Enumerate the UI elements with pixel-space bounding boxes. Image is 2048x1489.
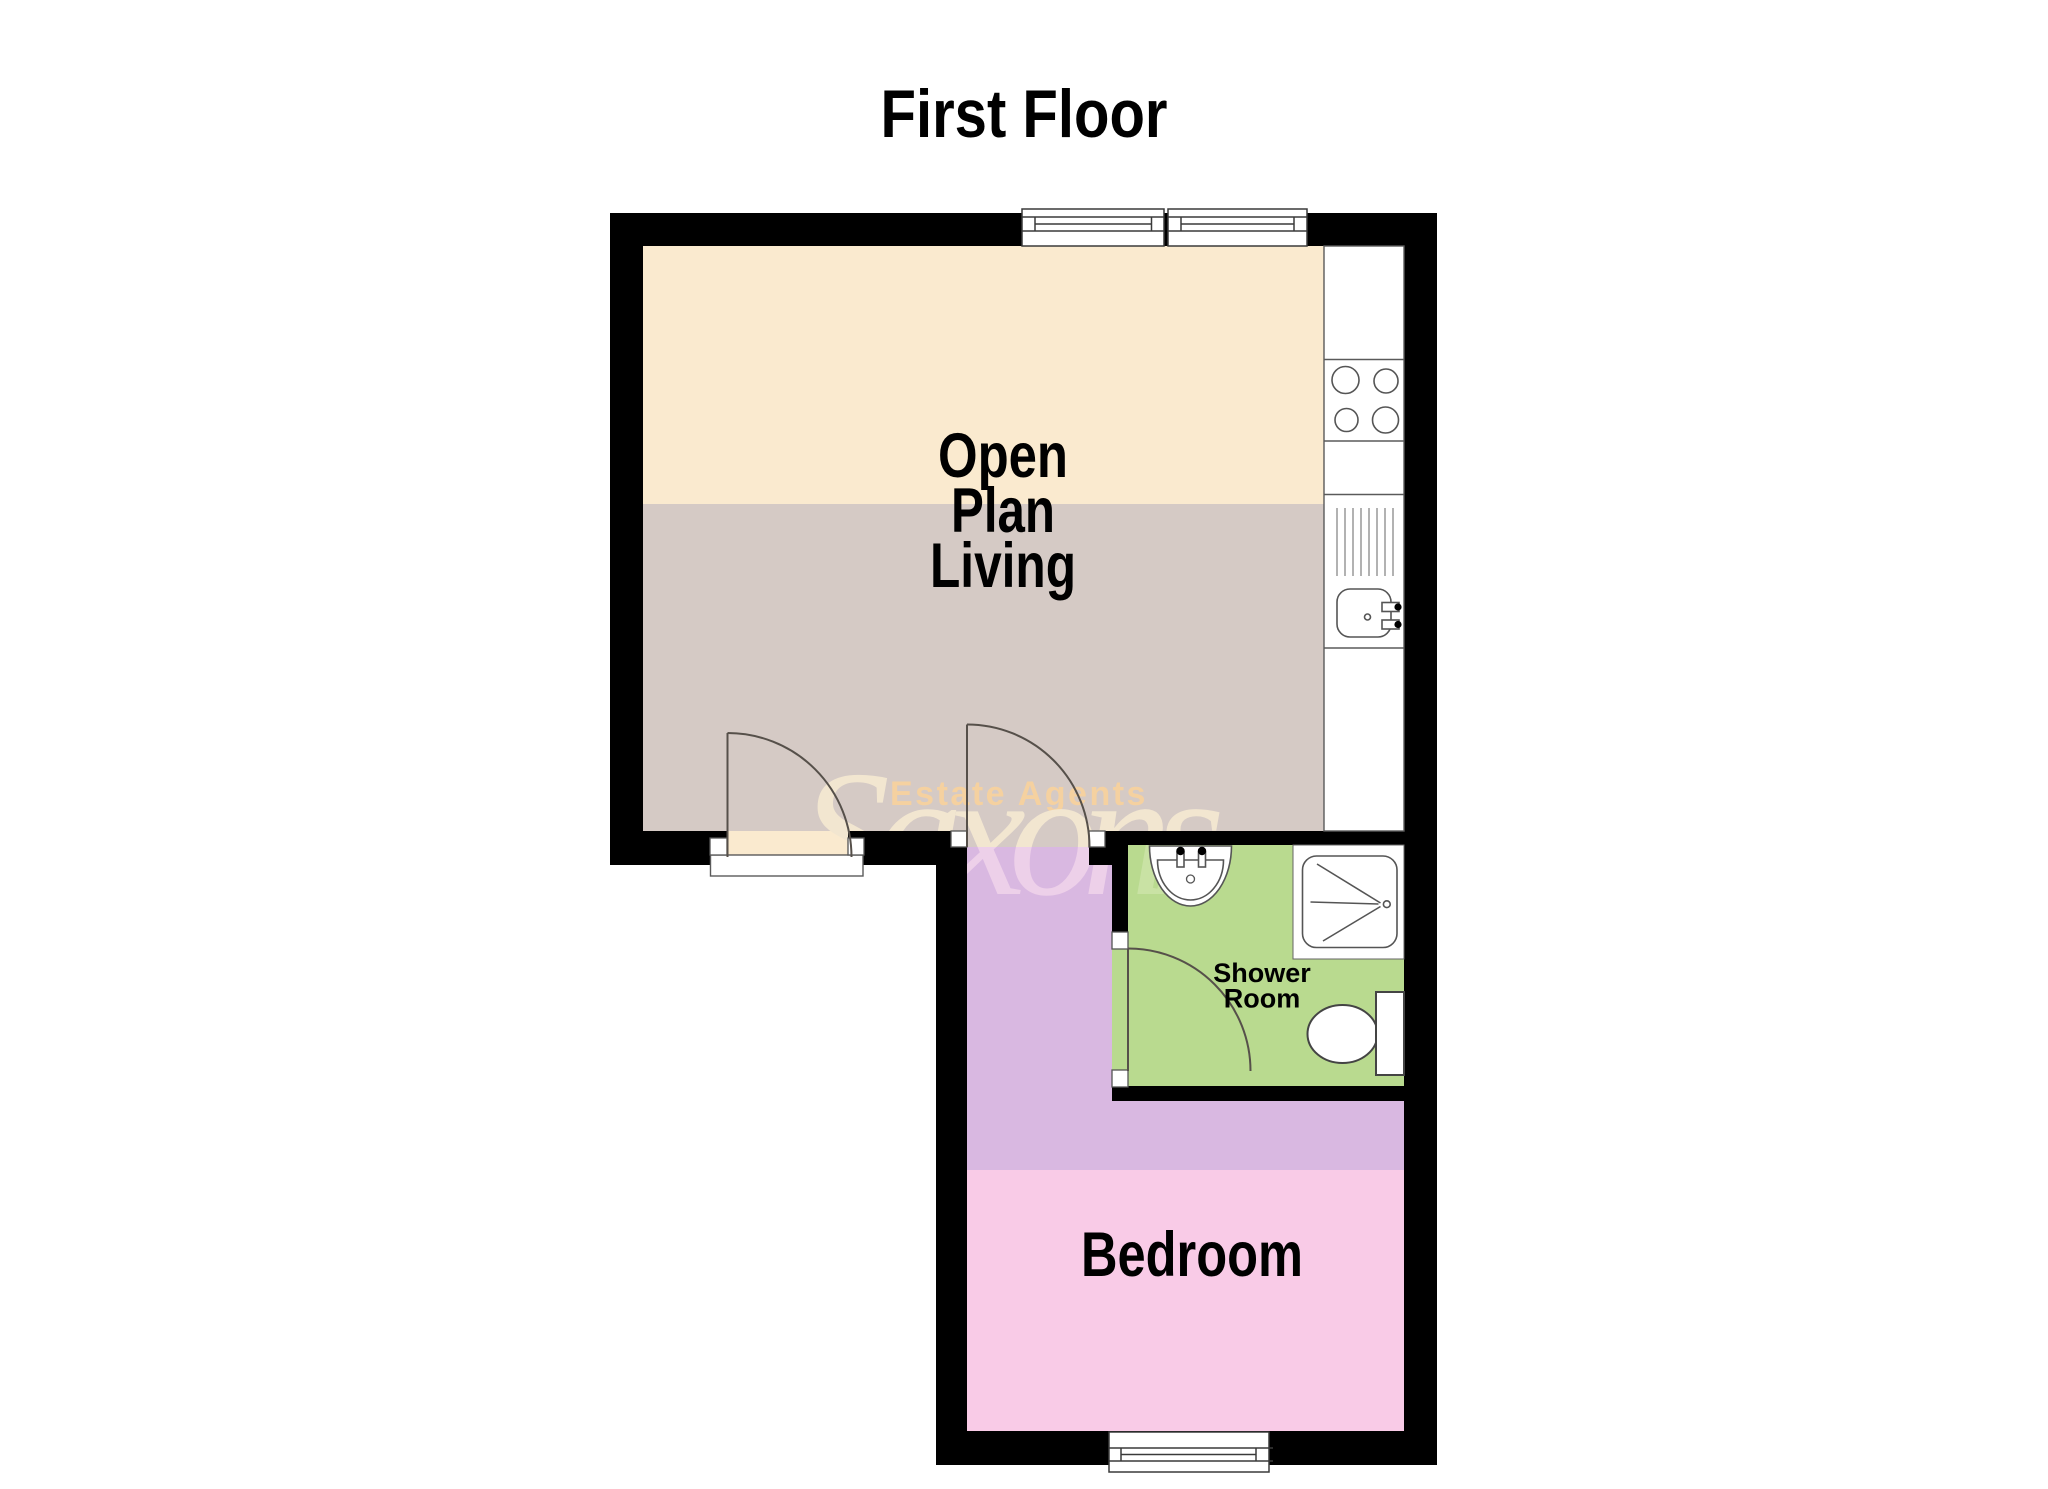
svg-text:Bedroom: Bedroom [1081, 1220, 1303, 1290]
svg-text:Living: Living [930, 531, 1076, 601]
svg-text:Room: Room [1224, 984, 1301, 1014]
svg-text:First Floor: First Floor [881, 76, 1168, 152]
